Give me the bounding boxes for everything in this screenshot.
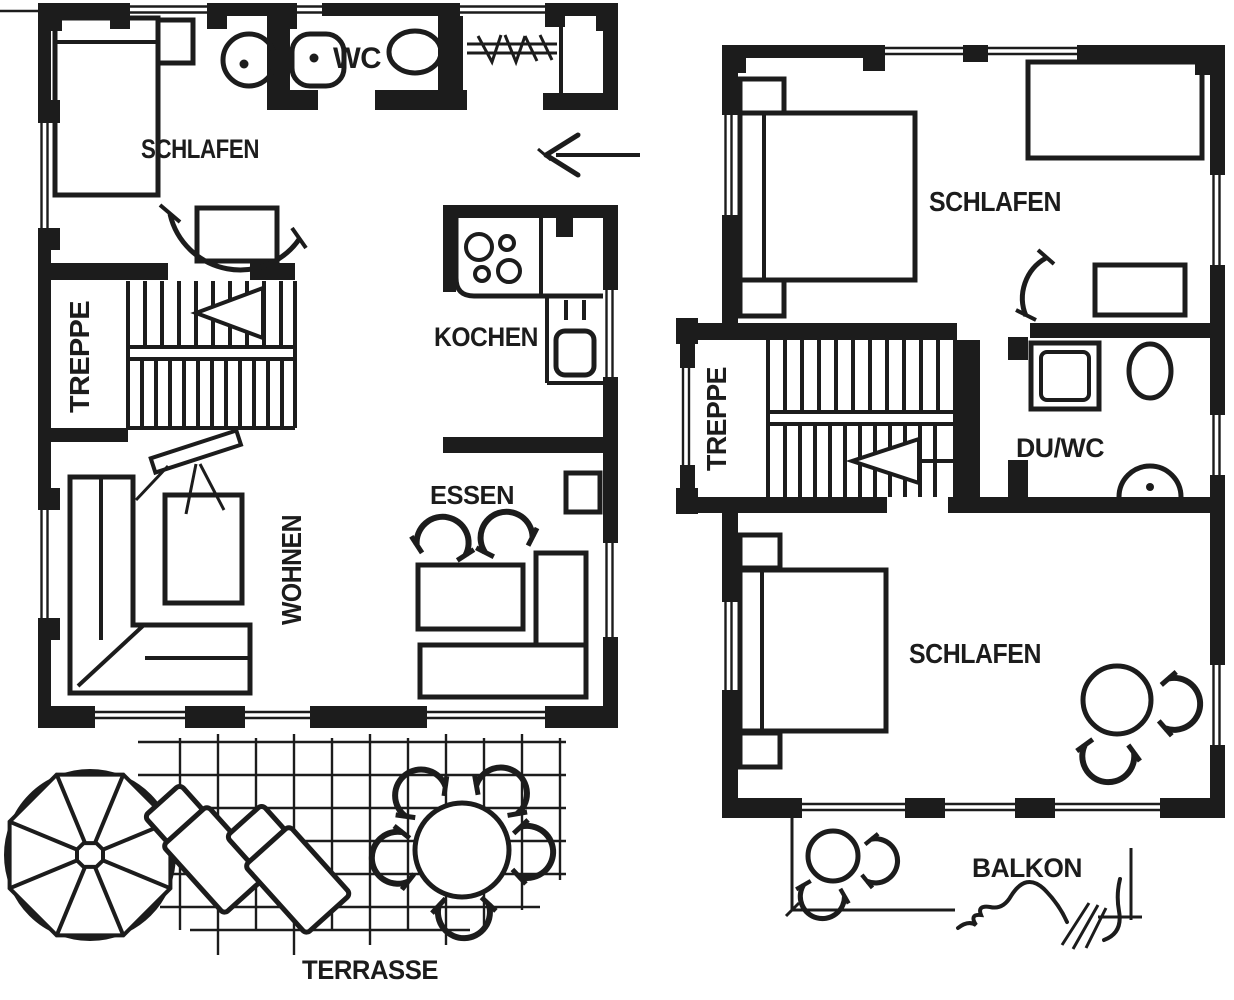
floor-plan-page: SCHLAFEN WC TREPPE KOCHEN ESSEN WOHNEN T… xyxy=(0,0,1234,1000)
stove xyxy=(466,234,520,282)
double-bed xyxy=(740,113,915,280)
label-schlafen-bottom: SCHLAFEN xyxy=(909,638,1041,669)
dresser xyxy=(197,208,277,261)
dining-table xyxy=(418,565,523,629)
nightstand xyxy=(158,20,193,63)
upper-floor-plan: SCHLAFEN TREPPE DU/WC SCHLAFEN BALKON xyxy=(676,45,1225,949)
staircase-upper xyxy=(768,340,955,497)
nightstand xyxy=(740,79,784,113)
terrace-table xyxy=(415,803,509,897)
label-wohnen: WOHNEN xyxy=(276,515,307,625)
double-bed xyxy=(740,570,886,731)
balcony-chair xyxy=(861,833,901,891)
label-terrasse: TERRASSE xyxy=(302,955,438,985)
entrance-arrow xyxy=(538,135,640,175)
ground-floor-plan: SCHLAFEN WC TREPPE KOCHEN ESSEN WOHNEN T… xyxy=(0,3,640,985)
dining-bench xyxy=(420,553,586,697)
shower xyxy=(1031,343,1099,409)
side-table xyxy=(566,473,600,512)
terrace-chair xyxy=(431,897,496,939)
nightstand xyxy=(740,733,780,767)
bedroom-chair xyxy=(1158,671,1203,738)
wardrobe xyxy=(1028,62,1202,158)
coffee-table xyxy=(165,495,242,603)
dining-chair xyxy=(408,511,479,564)
washbasin xyxy=(1119,466,1181,497)
toilet xyxy=(389,31,441,73)
kitchen-counter xyxy=(456,218,603,383)
label-essen: ESSEN xyxy=(430,480,514,510)
label-balkon: BALKON xyxy=(972,853,1082,883)
nightstand xyxy=(740,535,780,568)
bedroom-table xyxy=(1083,666,1151,734)
kitchen-sink xyxy=(556,300,594,375)
staircase xyxy=(128,281,295,428)
label-treppe-upper: TREPPE xyxy=(701,367,732,471)
label-treppe: TREPPE xyxy=(64,301,95,413)
label-wc: WC xyxy=(333,42,381,75)
bed xyxy=(55,18,158,195)
label-duwc: DU/WC xyxy=(1016,433,1104,463)
nightstand xyxy=(740,280,784,316)
wardrobe-rail xyxy=(467,35,557,62)
bedroom-chair xyxy=(1073,737,1142,787)
balcony-table xyxy=(808,831,858,881)
balcony-chair xyxy=(790,878,851,925)
dining-chair xyxy=(468,503,541,561)
plant-squiggle xyxy=(958,879,1120,949)
toilet xyxy=(1129,344,1171,398)
label-kochen: KOCHEN xyxy=(434,322,538,352)
parasol xyxy=(6,771,174,939)
label-schlafen-top: SCHLAFEN xyxy=(929,186,1061,217)
door-arc-duwc xyxy=(1016,250,1054,320)
sideboard-legs xyxy=(136,464,224,514)
stair-direction-arrow xyxy=(852,439,919,483)
cabinet xyxy=(1095,265,1185,315)
label-schlafen: SCHLAFEN xyxy=(141,134,259,164)
floor-plan-drawing: SCHLAFEN WC TREPPE KOCHEN ESSEN WOHNEN T… xyxy=(0,0,1234,1000)
